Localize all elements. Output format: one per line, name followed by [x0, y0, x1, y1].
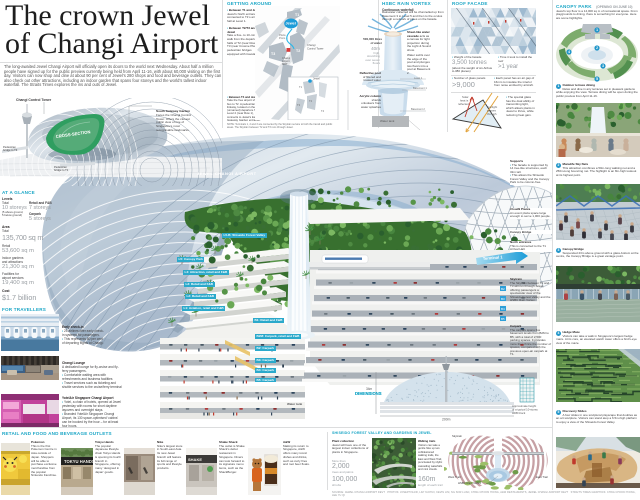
- svg-text:Control Tower: Control Tower: [307, 46, 324, 50]
- svg-text:B3: B3: [501, 297, 505, 301]
- svg-text:4: 4: [568, 50, 570, 54]
- svg-text:Jewel: Jewel: [286, 22, 296, 26]
- svg-text:Jewel: Jewel: [313, 77, 320, 81]
- svg-text:1: 1: [596, 28, 598, 32]
- svg-text:T2: T2: [296, 49, 300, 53]
- svg-text:B4: B4: [501, 307, 505, 311]
- svg-text:3: 3: [602, 64, 604, 68]
- svg-text:HDB block: HDB block: [512, 411, 526, 415]
- svg-text:T3: T3: [271, 52, 275, 56]
- svg-text:Prem...: Prem...: [279, 36, 288, 40]
- svg-text:B5: B5: [501, 317, 505, 321]
- svg-text:Changi: Changi: [307, 43, 316, 47]
- svg-text:reflected: reflected: [458, 102, 469, 106]
- svg-text:MRT: MRT: [282, 62, 288, 66]
- svg-text:B2: B2: [501, 287, 505, 291]
- svg-text:T1: T1: [295, 13, 299, 17]
- svg-text:through: through: [487, 112, 497, 116]
- svg-text:TOKYU HANDS: TOKYU HANDS: [64, 459, 93, 464]
- svg-text:5: 5: [596, 77, 598, 81]
- svg-text:200m: 200m: [442, 418, 451, 422]
- svg-text:2: 2: [596, 46, 598, 50]
- svg-text:SHAKE: SHAKE: [188, 457, 202, 462]
